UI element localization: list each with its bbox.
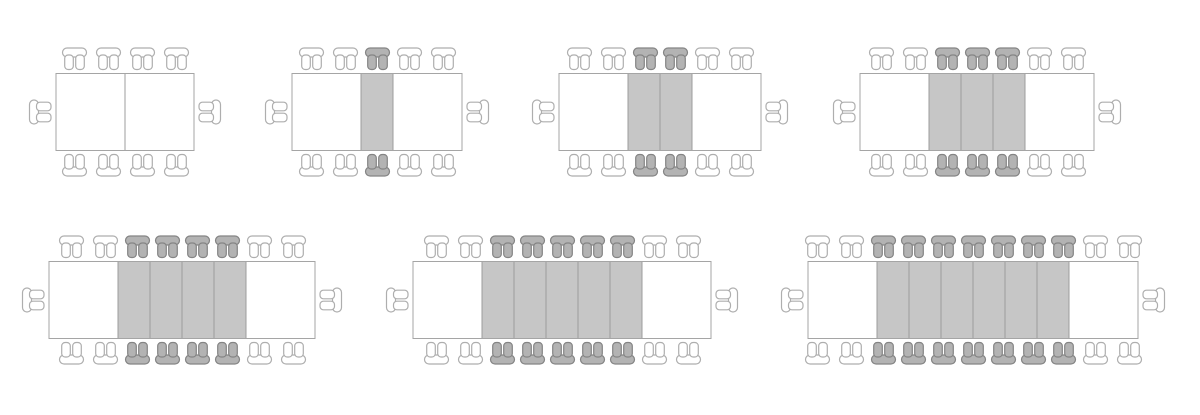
top-chair-row bbox=[57, 47, 193, 71]
top-chair-row bbox=[864, 47, 1090, 71]
bottom-chair-row bbox=[562, 153, 758, 177]
configuration-6 bbox=[383, 235, 742, 365]
chair-icon bbox=[990, 235, 1016, 259]
chair-icon bbox=[641, 235, 667, 259]
chair-icon bbox=[457, 235, 483, 259]
table-leaf bbox=[546, 262, 578, 338]
table-section bbox=[414, 262, 482, 338]
chair-icon bbox=[549, 235, 575, 259]
chair-icon bbox=[990, 341, 1016, 365]
chair-icon bbox=[1082, 235, 1108, 259]
chair-icon bbox=[566, 47, 592, 71]
configuration-5 bbox=[19, 235, 346, 365]
chair-icon bbox=[214, 341, 240, 365]
chair-icon bbox=[430, 47, 456, 71]
chair-icon bbox=[632, 47, 658, 71]
chair-icon bbox=[298, 153, 324, 177]
chair-icon bbox=[804, 341, 830, 365]
chair-icon bbox=[95, 153, 121, 177]
chair-icon bbox=[600, 47, 626, 71]
chair-icon bbox=[1050, 341, 1076, 365]
table-leaf bbox=[610, 262, 642, 338]
table-leaf bbox=[361, 74, 393, 150]
chair-icon bbox=[58, 341, 84, 365]
chair-icon bbox=[1026, 153, 1052, 177]
chair-icon bbox=[1082, 341, 1108, 365]
chair-icon bbox=[95, 47, 121, 71]
chair-icon bbox=[994, 153, 1020, 177]
chair-icon bbox=[566, 153, 592, 177]
chair-icon bbox=[1020, 235, 1046, 259]
end-chair-icon bbox=[531, 100, 557, 124]
chair-icon bbox=[298, 47, 324, 71]
table-section bbox=[293, 74, 361, 150]
table-leaf bbox=[578, 262, 610, 338]
chair-icon bbox=[280, 341, 306, 365]
chair-icon bbox=[396, 47, 422, 71]
chair-icon bbox=[184, 235, 210, 259]
table-section bbox=[642, 262, 711, 338]
table-leaf bbox=[118, 262, 150, 338]
chair-icon bbox=[934, 47, 960, 71]
end-chair-icon bbox=[264, 100, 290, 124]
configuration-1 bbox=[26, 47, 225, 177]
end-chair-icon bbox=[465, 100, 491, 124]
chair-icon bbox=[902, 153, 928, 177]
chair-icon bbox=[423, 235, 449, 259]
chair-icon bbox=[930, 341, 956, 365]
chair-icon bbox=[423, 341, 449, 365]
chair-icon bbox=[124, 341, 150, 365]
configuration-3 bbox=[529, 47, 792, 177]
chair-icon bbox=[1060, 153, 1086, 177]
table-leaf bbox=[482, 262, 514, 338]
chair-icon bbox=[609, 341, 635, 365]
configuration-2 bbox=[262, 47, 493, 177]
end-chair-icon bbox=[318, 288, 344, 312]
table-and-end-chairs bbox=[26, 73, 225, 151]
table-and-end-chairs bbox=[383, 261, 742, 339]
chair-icon bbox=[280, 235, 306, 259]
chair-icon bbox=[549, 341, 575, 365]
chair-icon bbox=[804, 235, 830, 259]
table-and-end-chairs bbox=[529, 73, 792, 151]
top-chair-row bbox=[419, 235, 705, 259]
table-and-end-chairs bbox=[830, 73, 1125, 151]
chair-icon bbox=[930, 235, 956, 259]
chair-icon bbox=[870, 235, 896, 259]
top-chair-row bbox=[800, 235, 1146, 259]
chair-icon bbox=[868, 47, 894, 71]
table-leaf bbox=[150, 262, 182, 338]
chair-icon bbox=[579, 341, 605, 365]
chair-icon bbox=[870, 341, 896, 365]
chair-icon bbox=[838, 235, 864, 259]
chair-icon bbox=[184, 341, 210, 365]
seating-configurations-figure bbox=[0, 0, 1200, 415]
chair-icon bbox=[332, 47, 358, 71]
configuration-4 bbox=[830, 47, 1125, 177]
table-and-end-chairs bbox=[778, 261, 1169, 339]
table-top bbox=[808, 261, 1139, 339]
chair-icon bbox=[694, 153, 720, 177]
table-top bbox=[292, 73, 463, 151]
table-top bbox=[56, 73, 195, 151]
chair-icon bbox=[129, 153, 155, 177]
chair-icon bbox=[163, 153, 189, 177]
chair-icon bbox=[246, 341, 272, 365]
table-section bbox=[57, 74, 125, 150]
table-section bbox=[560, 74, 628, 150]
chair-icon bbox=[600, 153, 626, 177]
chair-icon bbox=[868, 153, 894, 177]
table-top bbox=[413, 261, 712, 339]
table-leaf bbox=[1037, 262, 1069, 338]
chair-icon bbox=[92, 235, 118, 259]
chair-icon bbox=[579, 235, 605, 259]
chair-icon bbox=[728, 153, 754, 177]
chair-icon bbox=[934, 153, 960, 177]
table-leaf bbox=[973, 262, 1005, 338]
top-chair-row bbox=[294, 47, 460, 71]
bottom-chair-row bbox=[54, 341, 310, 365]
chair-icon bbox=[364, 47, 390, 71]
end-chair-icon bbox=[21, 288, 47, 312]
chair-icon bbox=[154, 341, 180, 365]
chair-icon bbox=[900, 235, 926, 259]
end-chair-icon bbox=[780, 288, 806, 312]
chair-icon bbox=[364, 153, 390, 177]
end-chair-icon bbox=[385, 288, 411, 312]
configuration-7 bbox=[778, 235, 1169, 365]
chair-icon bbox=[1020, 341, 1046, 365]
chair-icon bbox=[1116, 235, 1142, 259]
chair-icon bbox=[675, 341, 701, 365]
chair-icon bbox=[964, 153, 990, 177]
bottom-chair-row bbox=[57, 153, 193, 177]
chair-icon bbox=[960, 235, 986, 259]
table-leaf bbox=[929, 74, 961, 150]
table-section bbox=[1069, 262, 1138, 338]
chair-icon bbox=[332, 153, 358, 177]
table-leaf bbox=[941, 262, 973, 338]
bottom-chair-row bbox=[864, 153, 1090, 177]
chair-icon bbox=[61, 47, 87, 71]
chair-icon bbox=[489, 235, 515, 259]
chair-icon bbox=[1116, 341, 1142, 365]
chair-icon bbox=[124, 235, 150, 259]
chair-icon bbox=[964, 47, 990, 71]
chair-icon bbox=[457, 341, 483, 365]
table-and-end-chairs bbox=[262, 73, 493, 151]
chair-icon bbox=[662, 153, 688, 177]
table-leaf bbox=[1005, 262, 1037, 338]
chair-icon bbox=[519, 341, 545, 365]
chair-icon bbox=[519, 235, 545, 259]
chair-icon bbox=[994, 47, 1020, 71]
chair-icon bbox=[154, 235, 180, 259]
chair-icon bbox=[838, 341, 864, 365]
chair-icon bbox=[489, 341, 515, 365]
chair-icon bbox=[900, 341, 926, 365]
chair-icon bbox=[163, 47, 189, 71]
chair-icon bbox=[61, 153, 87, 177]
table-leaf bbox=[660, 74, 692, 150]
table-leaf bbox=[909, 262, 941, 338]
table-and-end-chairs bbox=[19, 261, 346, 339]
end-chair-icon bbox=[197, 100, 223, 124]
chair-icon bbox=[675, 235, 701, 259]
chair-icon bbox=[246, 235, 272, 259]
bottom-chair-row bbox=[800, 341, 1146, 365]
table-section bbox=[393, 74, 462, 150]
end-chair-icon bbox=[714, 288, 740, 312]
chair-icon bbox=[902, 47, 928, 71]
bottom-chair-row bbox=[294, 153, 460, 177]
chair-icon bbox=[641, 341, 667, 365]
table-leaf bbox=[514, 262, 546, 338]
chair-icon bbox=[632, 153, 658, 177]
table-section bbox=[1025, 74, 1094, 150]
end-chair-icon bbox=[764, 100, 790, 124]
chair-icon bbox=[728, 47, 754, 71]
chair-icon bbox=[214, 235, 240, 259]
table-leaf bbox=[182, 262, 214, 338]
table-leaf bbox=[961, 74, 993, 150]
table-section bbox=[809, 262, 877, 338]
chair-icon bbox=[960, 341, 986, 365]
chair-icon bbox=[58, 235, 84, 259]
table-top bbox=[559, 73, 762, 151]
table-section bbox=[246, 262, 315, 338]
table-top bbox=[49, 261, 316, 339]
chair-icon bbox=[129, 47, 155, 71]
end-chair-icon bbox=[1141, 288, 1167, 312]
chair-icon bbox=[1026, 47, 1052, 71]
table-section bbox=[50, 262, 118, 338]
end-chair-icon bbox=[28, 100, 54, 124]
chair-icon bbox=[430, 153, 456, 177]
table-leaf bbox=[993, 74, 1025, 150]
table-section bbox=[692, 74, 761, 150]
chair-icon bbox=[1050, 235, 1076, 259]
table-section bbox=[861, 74, 929, 150]
end-chair-icon bbox=[1097, 100, 1123, 124]
chair-icon bbox=[92, 341, 118, 365]
chair-icon bbox=[1060, 47, 1086, 71]
chair-icon bbox=[694, 47, 720, 71]
table-leaf bbox=[877, 262, 909, 338]
table-top bbox=[860, 73, 1095, 151]
chair-icon bbox=[609, 235, 635, 259]
top-chair-row bbox=[54, 235, 310, 259]
top-chair-row bbox=[562, 47, 758, 71]
table-leaf bbox=[628, 74, 660, 150]
chair-icon bbox=[662, 47, 688, 71]
chair-icon bbox=[396, 153, 422, 177]
end-chair-icon bbox=[832, 100, 858, 124]
table-section bbox=[125, 74, 194, 150]
bottom-chair-row bbox=[419, 341, 705, 365]
table-leaf bbox=[214, 262, 246, 338]
